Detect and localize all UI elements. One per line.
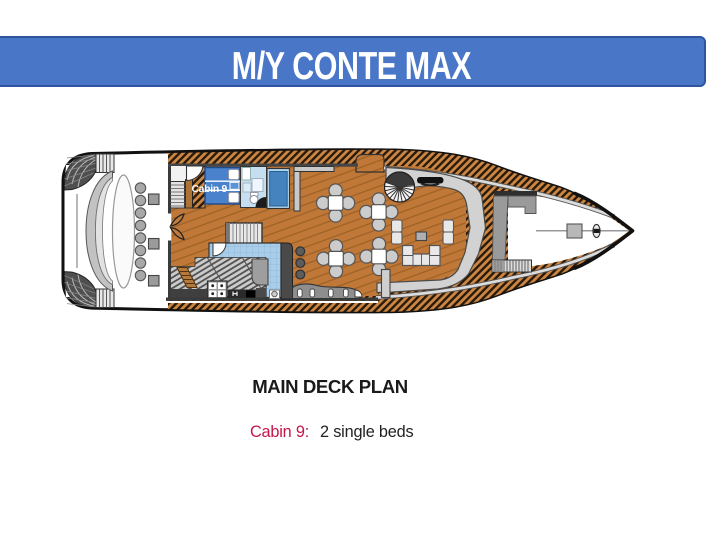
svg-text:Cabin 9: Cabin 9 [192,184,228,195]
